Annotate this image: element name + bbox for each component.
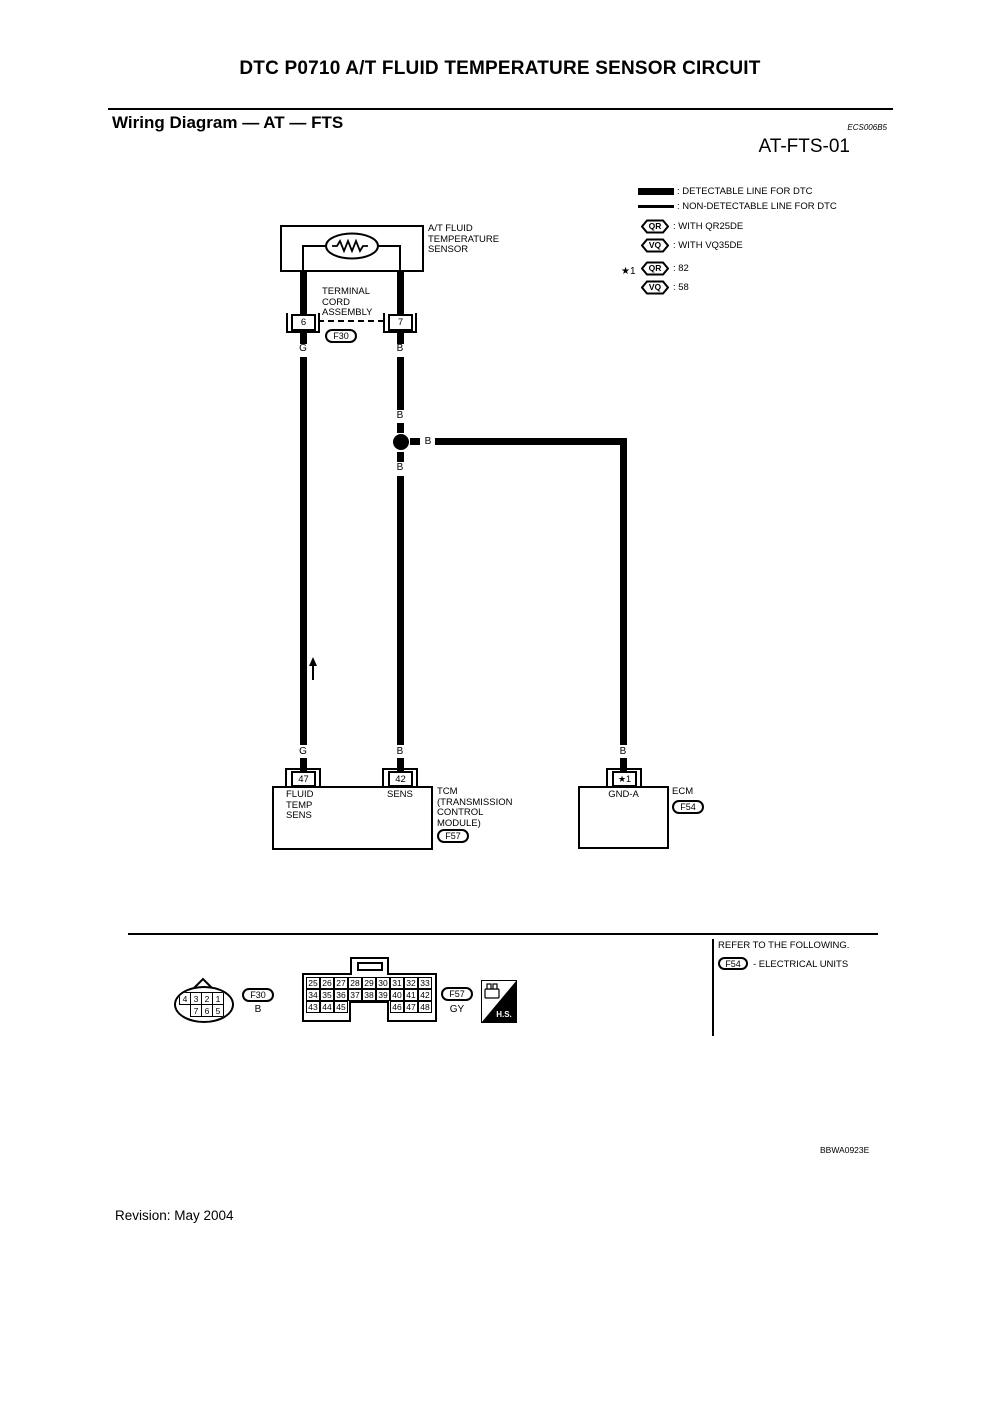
- tcm-name: TCM (TRANSMISSION CONTROL MODULE): [437, 787, 512, 829]
- wire-b-branch: [410, 438, 420, 445]
- connector-ref-f30: F30: [325, 329, 357, 343]
- pin-cell: 36: [334, 989, 348, 1001]
- diagram-id: AT-FTS-01: [759, 136, 851, 158]
- pin-cell: 37: [348, 989, 362, 1001]
- vq-hexagon-pin-label: VQ: [641, 282, 669, 292]
- pin-cell: 26: [320, 977, 334, 989]
- wire-b-branch: [435, 438, 627, 445]
- sensor-inner-lead: [399, 245, 401, 272]
- qr-hexagon-label: QR: [641, 221, 669, 231]
- terminal-7: 7: [388, 314, 413, 331]
- pin-cell: 40: [390, 989, 404, 1001]
- terminal-star1: ★1: [612, 771, 637, 787]
- connector-separation-dashed-line: [318, 320, 384, 322]
- ecm-name: ECM: [672, 787, 693, 798]
- wire-color-label: B: [393, 746, 407, 758]
- wire-b: [397, 270, 404, 315]
- connector-ref-f57: F57: [437, 829, 469, 843]
- connector-f57-notch: [349, 1001, 389, 1022]
- harness-side-icon: H.S.: [481, 980, 517, 1023]
- pin-cell: 39: [376, 989, 390, 1001]
- section-divider: [128, 933, 878, 935]
- pin-cell: 25: [306, 977, 320, 989]
- pin-cell: 33: [418, 977, 432, 989]
- tcm-name-line: MODULE): [437, 819, 512, 830]
- wire-b-branch: [620, 438, 627, 745]
- legend-nondetectable-line-swatch: [638, 205, 674, 208]
- sensor-label-line: SENSOR: [428, 245, 499, 256]
- wiring-diagram-page: DTC P0710 A/T FLUID TEMPERATURE SENSOR C…: [0, 0, 1000, 1414]
- pin-cell: 5: [212, 1004, 224, 1017]
- terminal-47: 47: [291, 771, 316, 787]
- pin-cell: 46: [390, 1001, 404, 1013]
- wire-g: [300, 270, 307, 315]
- pin-cell: 34: [306, 989, 320, 1001]
- tcm-pin42-label: SENS: [387, 790, 413, 801]
- qr-hexagon: QR: [641, 219, 669, 234]
- tcm-name-line: TCM: [437, 787, 512, 798]
- sensor-label: A/T FLUID TEMPERATURE SENSOR: [428, 224, 499, 256]
- pin-cell: 35: [320, 989, 334, 1001]
- pin-cell: 41: [404, 989, 418, 1001]
- sensor-label-line: A/T FLUID: [428, 224, 499, 235]
- wire-b: [397, 423, 404, 433]
- pin-cell: 29: [362, 977, 376, 989]
- pin-cell: 47: [404, 1001, 418, 1013]
- refer-block-rule: [712, 939, 714, 1036]
- section-code: ECS006B5: [847, 123, 887, 132]
- tcm-name-line: CONTROL: [437, 808, 512, 819]
- connector-ref-f54: F54: [672, 800, 704, 814]
- wire-junction-dot: [393, 434, 409, 450]
- terminal-cord-assembly-label: TERMINAL CORD ASSEMBLY: [322, 287, 373, 319]
- vq-hexagon: VQ: [641, 238, 669, 253]
- legend-vq-pin-value: : 58: [673, 282, 689, 294]
- tcm-pin47-line: SENS: [286, 811, 313, 822]
- wire-b: [397, 357, 404, 410]
- legend-detectable-text: : DETECTABLE LINE FOR DTC: [677, 186, 812, 198]
- legend-with-vq-text: : WITH VQ35DE: [673, 240, 743, 252]
- qr-hexagon-pin-label: QR: [641, 263, 669, 273]
- figure-code: BBWA0923E: [820, 1144, 869, 1156]
- connector-f57-tab-slot: [357, 962, 383, 971]
- wire-color-label: G: [296, 343, 310, 355]
- tcm-pin47-line: FLUID: [286, 790, 313, 801]
- sensor-inner-lead: [302, 245, 304, 272]
- pin-cell: 31: [390, 977, 404, 989]
- wire-b: [397, 476, 404, 745]
- wire-g: [300, 357, 307, 745]
- harness-side-label: H.S.: [496, 1010, 512, 1019]
- tcm-pin47-label: FLUID TEMP SENS: [286, 790, 313, 822]
- pin-cell: 38: [362, 989, 376, 1001]
- connector-f57-color: GY: [441, 1004, 473, 1016]
- pin-cell: 30: [376, 977, 390, 989]
- legend-nondetectable-text: : NON-DETECTABLE LINE FOR DTC: [677, 201, 837, 213]
- direction-arrow-stem: [312, 665, 314, 680]
- pin-cell: 43: [306, 1001, 320, 1013]
- wire-color-label: B: [393, 462, 407, 474]
- terminal-6: 6: [291, 314, 316, 331]
- pin-cell: 42: [418, 989, 432, 1001]
- connector-ref-f30-face: F30: [242, 988, 274, 1002]
- pin-cell: 44: [320, 1001, 334, 1013]
- assembly-label-line: TERMINAL: [322, 287, 373, 298]
- connector-f30-face: 4 3 2 1 7 6 5: [174, 986, 234, 1023]
- wire-color-label: B: [393, 343, 407, 355]
- legend-star-ref: ★1: [621, 266, 636, 278]
- thermistor-icon: [324, 232, 380, 260]
- wire-color-label: B: [421, 436, 435, 448]
- pin-cell: 32: [404, 977, 418, 989]
- terminal-42: 42: [388, 771, 413, 787]
- assembly-label-line: ASSEMBLY: [322, 308, 373, 319]
- connector-ref-f57-face: F57: [441, 987, 473, 1001]
- wire-color-label: G: [296, 746, 310, 758]
- wire-b: [397, 452, 404, 462]
- connector-f30-color: B: [242, 1004, 274, 1016]
- wire-color-label: B: [616, 746, 630, 758]
- revision-text: Revision: May 2004: [115, 1210, 234, 1222]
- pin-cell: 48: [418, 1001, 432, 1013]
- refer-line1: REFER TO THE FOLLOWING.: [718, 941, 849, 952]
- pin-cell: 27: [334, 977, 348, 989]
- ecm-pin-label: GND-A: [578, 790, 669, 801]
- legend-qr-pin-value: : 82: [673, 263, 689, 275]
- section-title: Wiring Diagram — AT — FTS: [112, 113, 343, 133]
- vq-hexagon-pin: VQ: [641, 280, 669, 295]
- header-rule: [108, 108, 893, 110]
- legend-detectable-line-swatch: [638, 188, 674, 195]
- vq-hexagon-label: VQ: [641, 240, 669, 250]
- pin-cell: 28: [348, 977, 362, 989]
- qr-hexagon-pin: QR: [641, 261, 669, 276]
- page-title: DTC P0710 A/T FLUID TEMPERATURE SENSOR C…: [0, 58, 1000, 80]
- legend-with-qr-text: : WITH QR25DE: [673, 221, 743, 233]
- pin-cell: 45: [334, 1001, 348, 1013]
- wire-color-label: B: [393, 410, 407, 422]
- refer-ref-f54: F54: [718, 957, 748, 970]
- refer-text: - ELECTRICAL UNITS: [753, 960, 848, 971]
